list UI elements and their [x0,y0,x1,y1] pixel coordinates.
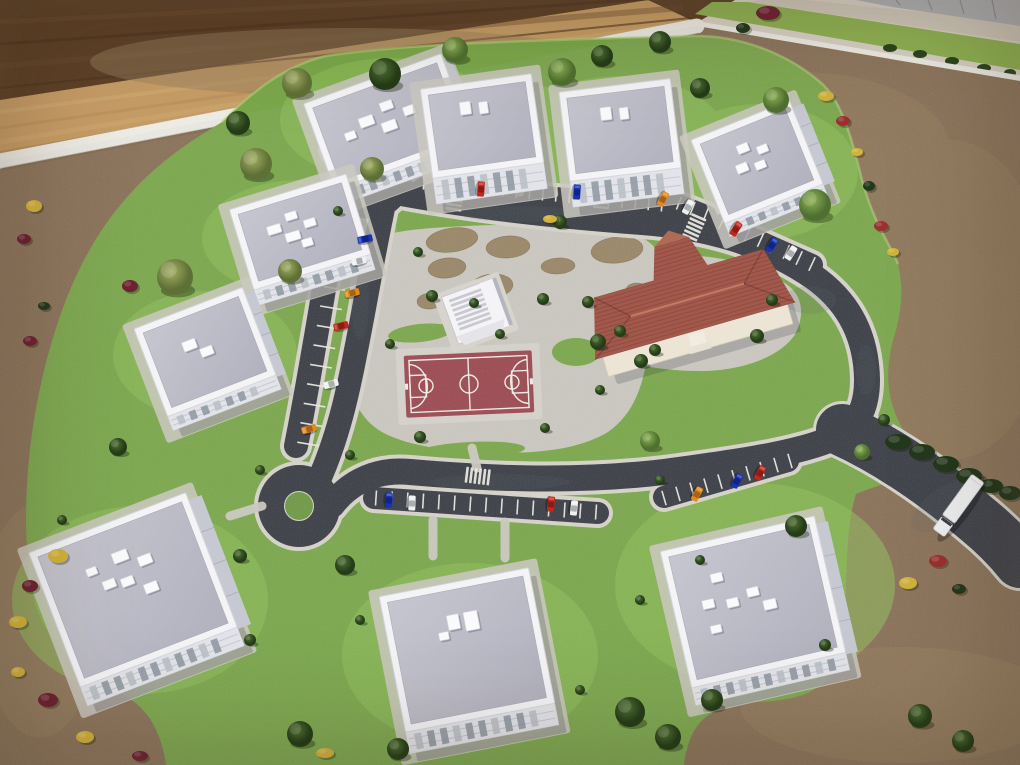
scene-svg: Aerial photograph of an architectural sc… [0,0,1020,765]
rooftop-unit [459,101,472,115]
rooftop-unit [600,106,613,120]
apartment-building-5 [548,69,695,218]
rooftop-unit [446,614,461,631]
rooftop-unit [478,101,489,114]
rooftop-unit [438,631,449,641]
rooftop-unit [619,107,629,120]
car-blue [383,492,393,508]
model-photo: Aerial photograph of an architectural sc… [0,0,1020,765]
apartment-building-8 [368,558,571,765]
car-white [406,495,416,511]
